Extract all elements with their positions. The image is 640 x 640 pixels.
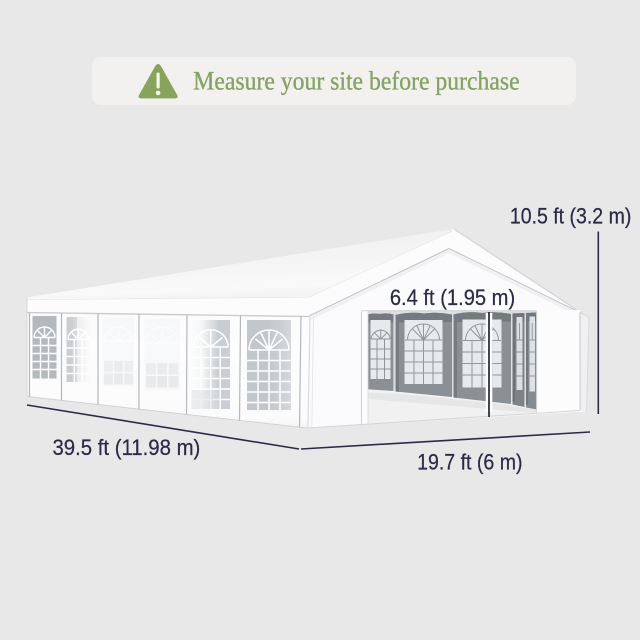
svg-text:39.5 ft (11.98 m): 39.5 ft (11.98 m) [52,435,200,460]
svg-text:19.7 ft (6 m): 19.7 ft (6 m) [417,450,522,475]
svg-text:6.4 ft (1.95 m): 6.4 ft (1.95 m) [390,285,515,310]
svg-text:Measure your site before purch: Measure your site before purchase [193,67,519,95]
svg-text:10.5 ft (3.2 m): 10.5 ft (3.2 m) [510,204,631,229]
